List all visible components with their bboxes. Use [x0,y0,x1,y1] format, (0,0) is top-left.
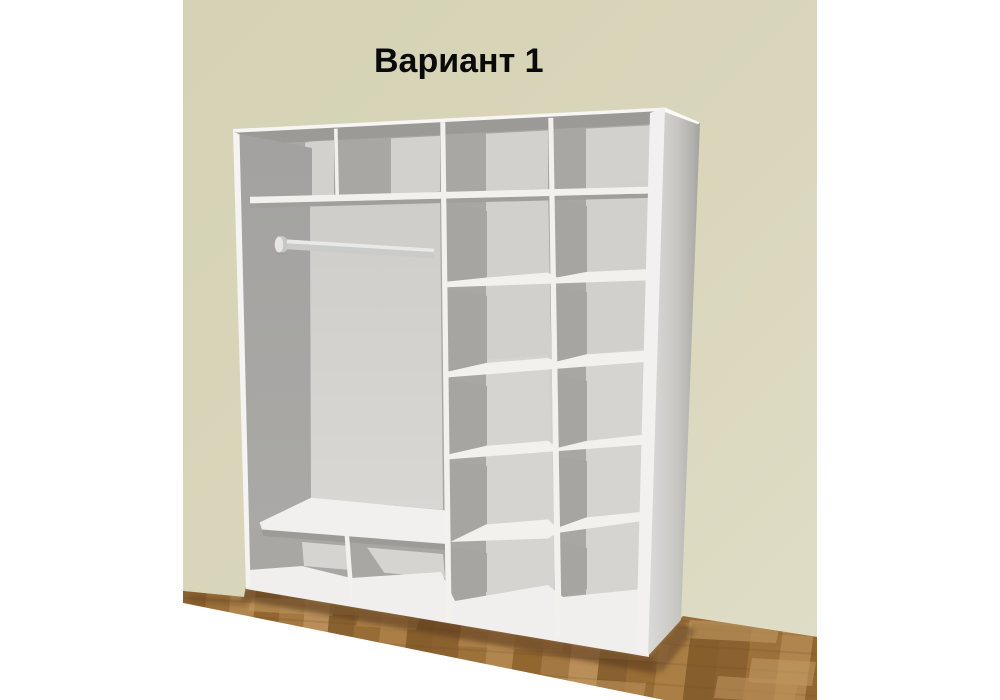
svg-text:Вариант 1: Вариант 1 [374,42,544,80]
